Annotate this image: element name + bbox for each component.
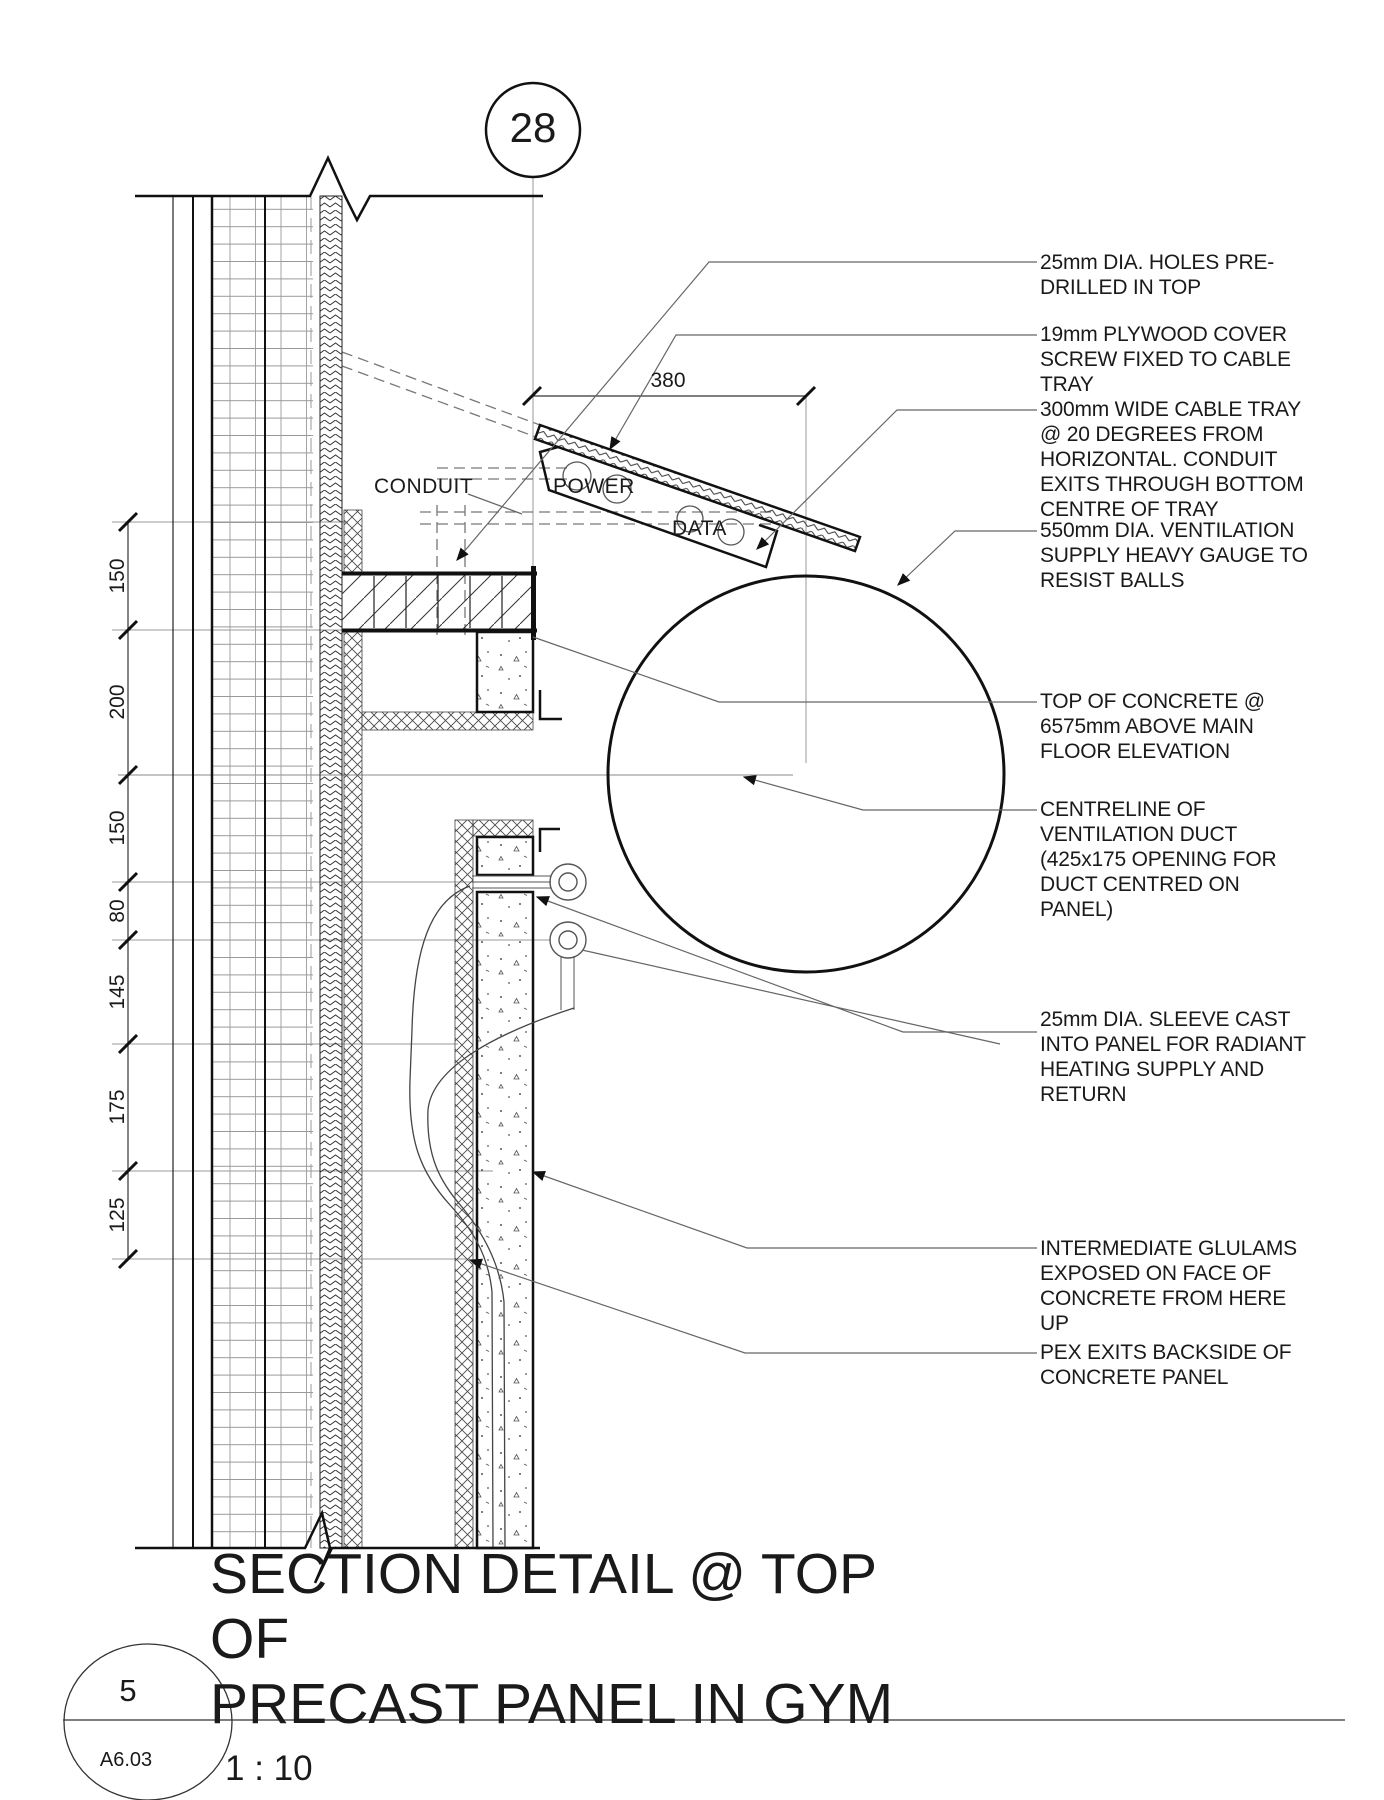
leader-topconcrete: [533, 637, 1037, 702]
drawing-scale: 1 : 10: [225, 1750, 385, 1788]
dim-175: 175: [105, 1067, 129, 1147]
annotation-cabletray: 300mm WIDE CABLE TRAY @ 20 DEGREES FROM …: [1040, 397, 1310, 522]
masonry-grid-hatch: [212, 196, 313, 1548]
insulation-hatch-horizontal: [362, 712, 533, 730]
dim-145: 145: [105, 952, 129, 1032]
leader-centreline: [744, 777, 1037, 810]
drawing-sheet: 28 380 CONDUIT POWER DATA 150 200 150 80…: [0, 0, 1384, 1800]
annotation-centreline: CENTRELINE OF VENTILATION DUCT (425x175 …: [1040, 797, 1310, 922]
annotation-vent: 550mm DIA. VENTILATION SUPPLY HEAVY GAUG…: [1040, 518, 1310, 593]
sheet-bubble-number: 5: [98, 1674, 158, 1708]
power-label: POWER: [553, 474, 653, 499]
insulation-hatch-upper: [344, 510, 362, 572]
concrete-block-mid: [477, 837, 533, 875]
annotation-topconcrete: TOP OF CONCRETE @ 6575mm ABOVE MAIN FLOO…: [1040, 689, 1310, 764]
sheet-bubble-sheet: A6.03: [86, 1748, 166, 1772]
leader-vent: [898, 531, 1037, 585]
dim-80: 80: [105, 871, 129, 951]
sheet-bubble-circle: [64, 1644, 232, 1800]
insulation-hatch-cap: [473, 820, 533, 836]
drawing-title: SECTION DETAIL @ TOP OF PRECAST PANEL IN…: [210, 1542, 970, 1737]
leader-sleeve-b: [582, 950, 1000, 1044]
sheathing-hatch: [320, 196, 342, 1548]
leader-sleeve-a: [537, 897, 1037, 1032]
annotation-glulams: INTERMEDIATE GLULAMS EXPOSED ON FACE OF …: [1040, 1236, 1310, 1336]
dim-125: 125: [105, 1175, 129, 1255]
annotation-sleeve: 25mm DIA. SLEEVE CAST INTO PANEL FOR RAD…: [1040, 1007, 1310, 1107]
annotation-pex: PEX EXITS BACKSIDE OF CONCRETE PANEL: [1040, 1340, 1310, 1390]
dim-200: 200: [105, 662, 129, 742]
glulam-blocking: [342, 566, 537, 640]
annotation-plywood: 19mm PLYWOOD COVER SCREW FIXED TO CABLE …: [1040, 322, 1310, 397]
dimension-380-label: 380: [638, 368, 698, 393]
leader-pex: [470, 1260, 1037, 1353]
detail-number: 28: [503, 104, 563, 152]
leader-glulams: [533, 1172, 1037, 1248]
conduit-label: CONDUIT: [374, 474, 484, 499]
insulation-hatch-lower: [344, 632, 362, 1548]
concrete-block-upper: [477, 632, 533, 712]
dim-150-top: 150: [105, 536, 129, 616]
annotation-holes: 25mm DIA. HOLES PRE- DRILLED IN TOP: [1040, 250, 1310, 300]
duct-opening-marks: [540, 690, 562, 852]
insulation-hatch-panel-back: [455, 820, 473, 1548]
data-label: DATA: [672, 516, 752, 541]
dim-150-mid: 150: [105, 788, 129, 868]
